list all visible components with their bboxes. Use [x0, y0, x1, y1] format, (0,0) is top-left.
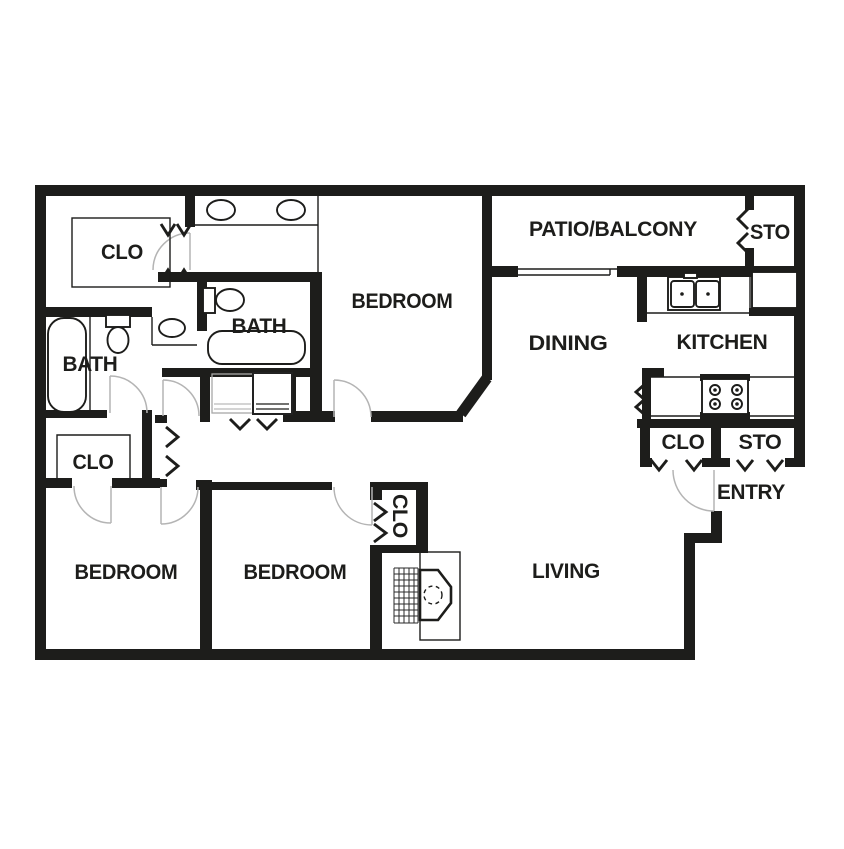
kitchen-double-sink-icon — [668, 273, 720, 310]
refrigerator-icon — [749, 272, 798, 316]
room-label-bedroom-top: BEDROOM — [352, 289, 453, 313]
floor-plan-page: CLO BATH BATH BEDROOM PATIO/BALCONY STO … — [0, 0, 844, 844]
door-swing-bedroom-left-closet — [74, 486, 111, 523]
floor-plan-drawing: CLO BATH BATH BEDROOM PATIO/BALCONY STO … — [0, 0, 844, 844]
door-swing-hall-bath — [163, 380, 199, 416]
double-vanity-sinks-icon — [195, 196, 318, 272]
toilet-left-icon — [106, 315, 130, 353]
room-label-storage-entry: STO — [739, 430, 782, 454]
washer-dryer-icon — [212, 373, 292, 414]
room-label-patio-balcony: PATIO/BALCONY — [529, 217, 697, 241]
room-label-bedroom-center: BEDROOM — [244, 560, 347, 584]
room-label-dining: DINING — [529, 331, 608, 355]
stove-icon — [700, 374, 750, 419]
room-label-closet-entry: CLO — [662, 430, 705, 454]
room-label-storage-patio: STO — [750, 220, 790, 244]
door-swing-bedroom-center — [334, 487, 372, 525]
room-label-bath-center: BATH — [232, 314, 287, 338]
door-swing-bedroom-top — [334, 380, 371, 417]
door-swing-entry — [673, 470, 714, 511]
door-swing-bedroom-left — [161, 487, 198, 524]
fireplace-icon — [394, 552, 460, 640]
door-swing-bath-left — [110, 376, 147, 413]
room-label-kitchen: KITCHEN — [677, 330, 768, 354]
toilet-center-icon — [203, 288, 244, 313]
room-label-bedroom-left: BEDROOM — [75, 560, 178, 584]
room-label-closet-walkin: CLO — [101, 240, 143, 264]
door-swing-walkin-closet — [153, 233, 190, 270]
room-label-bath-left: BATH — [63, 352, 118, 376]
pedestal-sink-icon — [152, 317, 197, 345]
room-label-entry: ENTRY — [717, 480, 785, 504]
sliding-glass-door-icon — [518, 269, 617, 275]
room-label-closet-hall: CLO — [73, 450, 114, 474]
room-label-living: LIVING — [532, 559, 600, 583]
room-label-closet-bedroom-center: CLO — [388, 494, 412, 538]
